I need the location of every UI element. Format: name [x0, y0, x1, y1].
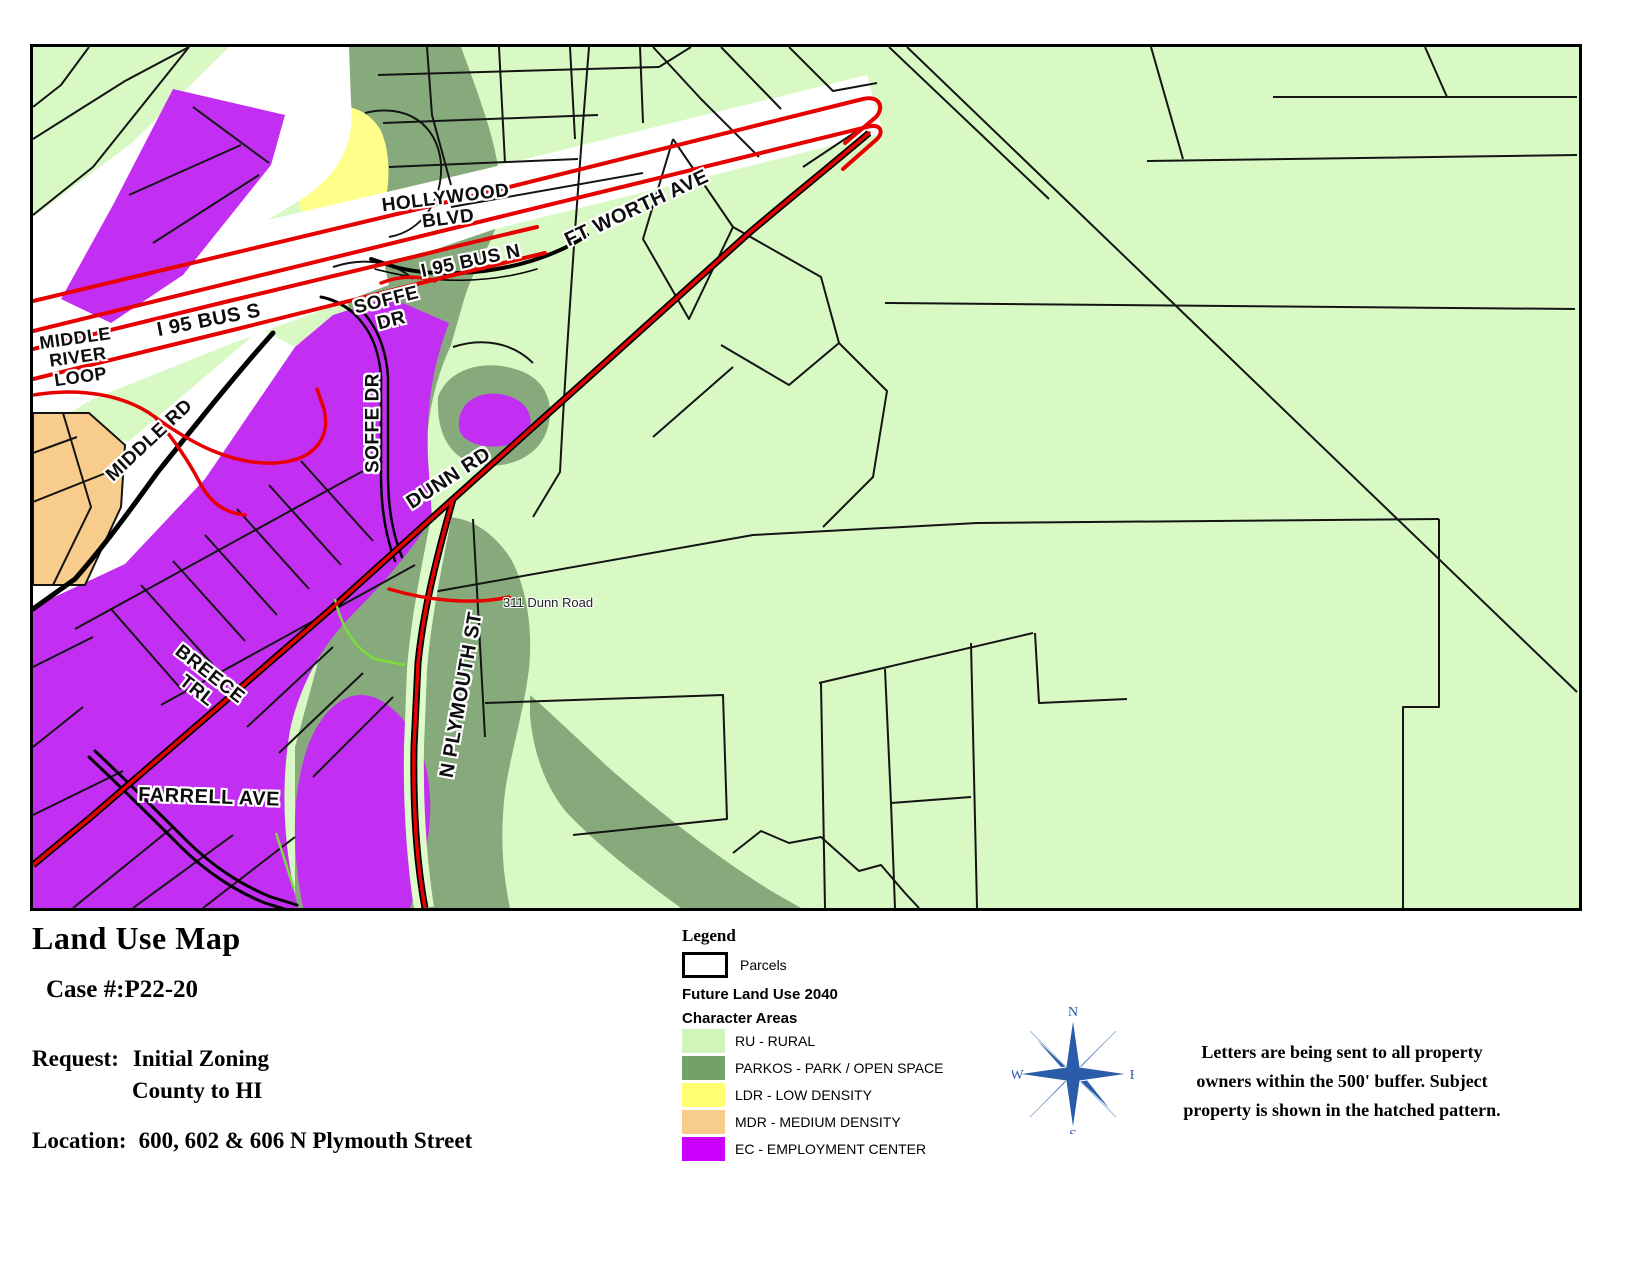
case-number: Case #:P22-20	[46, 976, 198, 1004]
legend-item-ldr: LDR - LOW DENSITY	[682, 1082, 872, 1108]
legend-item-parkos: PARKOS - PARK / OPEN SPACE	[682, 1055, 944, 1081]
page-title: Land Use Map	[32, 920, 241, 957]
map-viewport: MIDDLE RIVER LOOP I 95 BUS S SOFFE DR MI…	[30, 44, 1582, 911]
land-use-map-page: MIDDLE RIVER LOOP I 95 BUS S SOFFE DR MI…	[0, 0, 1650, 1275]
compass-s-label: S	[1069, 1128, 1077, 1134]
legend: Legend Parcels Future Land Use 2040 Char…	[682, 926, 1012, 946]
legend-item-ru: RU - RURAL	[682, 1028, 815, 1054]
legend-label-ec: EC - EMPLOYMENT CENTER	[735, 1141, 926, 1157]
request-value-line1: Initial Zoning	[133, 1046, 269, 1071]
parcels-swatch	[682, 952, 728, 978]
legend-swatch-parkos	[682, 1056, 725, 1080]
future-land-use-heading: Future Land Use 2040	[682, 986, 838, 1003]
legend-parcels-row: Parcels	[682, 952, 787, 978]
legend-swatch-mdr	[682, 1110, 725, 1134]
parcels-label: Parcels	[740, 957, 787, 973]
compass-e-label: E	[1130, 1068, 1134, 1083]
compass-rose-icon: N E S W	[1012, 1006, 1134, 1134]
compass-w-label: W	[1012, 1068, 1024, 1083]
legend-item-mdr: MDR - MEDIUM DENSITY	[682, 1109, 901, 1135]
road-label-middle-river-loop: MIDDLE RIVER LOOP	[38, 324, 117, 392]
legend-heading: Legend	[682, 926, 1012, 946]
address-label-311-dunn-road: 311 Dunn Road	[503, 595, 593, 610]
legend-item-ec: EC - EMPLOYMENT CENTER	[682, 1136, 926, 1162]
legend-label-parkos: PARKOS - PARK / OPEN SPACE	[735, 1060, 944, 1076]
buffer-note: Letters are being sent to all property o…	[1168, 1038, 1516, 1124]
location-value: 600, 602 & 606 N Plymouth Street	[139, 1128, 473, 1153]
road-label-soffe-dr-vertical: SOFFE DR	[364, 373, 385, 473]
legend-swatch-ru	[682, 1029, 725, 1053]
request-label: Request:	[32, 1046, 119, 1071]
compass-n-label: N	[1068, 1006, 1078, 1020]
request-line: Request:Initial Zoning	[32, 1046, 269, 1072]
legend-swatch-ldr	[682, 1083, 725, 1107]
map-drawing	[33, 47, 1579, 908]
legend-label-ru: RU - RURAL	[735, 1033, 815, 1049]
legend-swatch-ec	[682, 1137, 725, 1161]
location-line: Location:600, 602 & 606 N Plymouth Stree…	[32, 1128, 472, 1154]
legend-label-mdr: MDR - MEDIUM DENSITY	[735, 1114, 901, 1130]
legend-label-ldr: LDR - LOW DENSITY	[735, 1087, 872, 1103]
request-value-line2: County to HI	[132, 1078, 262, 1104]
location-label: Location:	[32, 1128, 127, 1153]
character-areas-heading: Character Areas	[682, 1010, 797, 1027]
